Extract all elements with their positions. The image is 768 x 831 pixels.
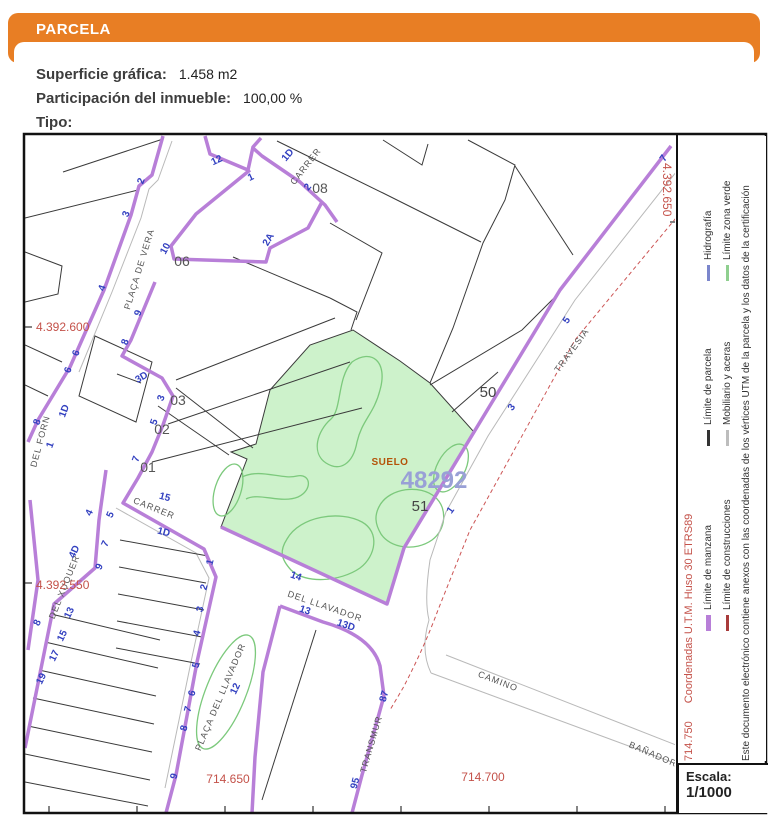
map-label-house: 5 — [561, 315, 573, 326]
legend-item: Mobiliario y aceras — [718, 281, 737, 446]
map-label-coord: 4.392.550 — [36, 578, 90, 592]
map-label-house: 13 — [62, 605, 77, 620]
legend-item: Límite de construcciones — [718, 446, 737, 631]
legend-swatch — [726, 265, 729, 281]
map-label-house: 1 — [45, 440, 57, 449]
map-label-house: 5 — [105, 510, 118, 520]
legend-panel: 714.750Coordenadas U.T.M. Huso 30 ETRS89… — [679, 136, 766, 761]
legend-rotated-block: 714.750Coordenadas U.T.M. Huso 30 ETRS89… — [679, 136, 766, 761]
legend-item: Límite de manzana — [699, 446, 718, 631]
corner-coordinate: 714.750 — [683, 721, 695, 761]
map-label-house: 8 — [32, 618, 45, 628]
coords-note-text: Coordenadas U.T.M. Huso 30 ETRS89 — [683, 514, 695, 704]
map-label-house: 1D — [57, 403, 72, 419]
map-label-coord: 714.700 — [461, 770, 505, 784]
legend-footer-text: Este documento electrónico contiene anex… — [737, 136, 752, 761]
map-label-house: 9 — [94, 562, 107, 572]
map-label-street: BAÑADOR — [628, 740, 679, 769]
map-label-house: 3 — [156, 393, 168, 402]
map-label-house: 14 — [289, 570, 304, 584]
map-label-house: 17 — [47, 648, 62, 663]
map-label-block: 02 — [154, 421, 170, 437]
map-label-house: 3 — [195, 605, 207, 614]
legend-swatch — [706, 615, 711, 631]
legend-swatch — [707, 265, 710, 281]
map-label-pnum: 48292 — [401, 467, 468, 494]
map-label-house: 2 — [136, 176, 148, 185]
map-label-house: 3D — [133, 370, 150, 386]
map-label-coord: 4.392.600 — [36, 320, 90, 334]
map-svg: CARRERPLAÇA DE VERADEL FORNDEL XUQUERCAR… — [0, 0, 768, 826]
legend-item: Límite de parcela — [699, 281, 718, 446]
map-label-house: 87 — [378, 689, 392, 703]
map-label-street: DEL LLAVADOR — [286, 589, 363, 624]
map-label-house: 15 — [55, 628, 70, 643]
map-label-block: 01 — [140, 459, 156, 475]
utm-coordinates-note: 714.750Coordenadas U.T.M. Huso 30 ETRS89 — [679, 136, 699, 761]
map-label-coord: 714.650 — [206, 772, 250, 786]
map-label-block: 06 — [174, 253, 190, 269]
legend-swatch — [726, 430, 729, 446]
scale-value: 1/1000 — [686, 784, 768, 801]
map-label-house: 1 — [445, 505, 457, 516]
scale-label: Escala: — [686, 769, 768, 784]
map-label-house: 4 — [84, 508, 97, 518]
legend-row-1: Límite de manzanaLímite de parcelaHidrog… — [699, 136, 718, 761]
map-label-sub: 51 — [412, 498, 429, 515]
map-label-block: 08 — [312, 180, 328, 196]
legend-swatch — [726, 615, 729, 631]
scale-box: Escala: 1/1000 — [677, 763, 768, 813]
map-label-street: PLAÇA DE VERA — [122, 227, 156, 310]
map-label-street: TRAVESIA — [552, 326, 591, 374]
map-label-street: CAMINO — [477, 669, 520, 693]
map-label-house: 7 — [100, 539, 113, 549]
map-label-block: 03 — [170, 392, 186, 408]
map-label-house: 1 — [205, 558, 217, 567]
legend-swatch — [707, 430, 710, 446]
map-label-street: TRANSMUR — [358, 714, 384, 773]
legend-row-2: Límite de construccionesMobiliario y ace… — [718, 136, 737, 761]
map-label-house: 1 — [246, 171, 256, 184]
legend-item: Hidrografía — [699, 211, 718, 281]
map-label-coord: 4.392.650 — [660, 163, 674, 217]
map-label-house: 2 — [199, 583, 211, 592]
legend-item: Límite zona verde — [718, 181, 737, 282]
cadastral-map: CARRERPLAÇA DE VERADEL FORNDEL XUQUERCAR… — [0, 0, 768, 826]
map-label-house: 15 — [158, 491, 172, 505]
map-label-house: 3 — [506, 402, 518, 413]
map-label-house: 1D — [156, 526, 171, 540]
map-label-sub: 50 — [480, 384, 497, 401]
